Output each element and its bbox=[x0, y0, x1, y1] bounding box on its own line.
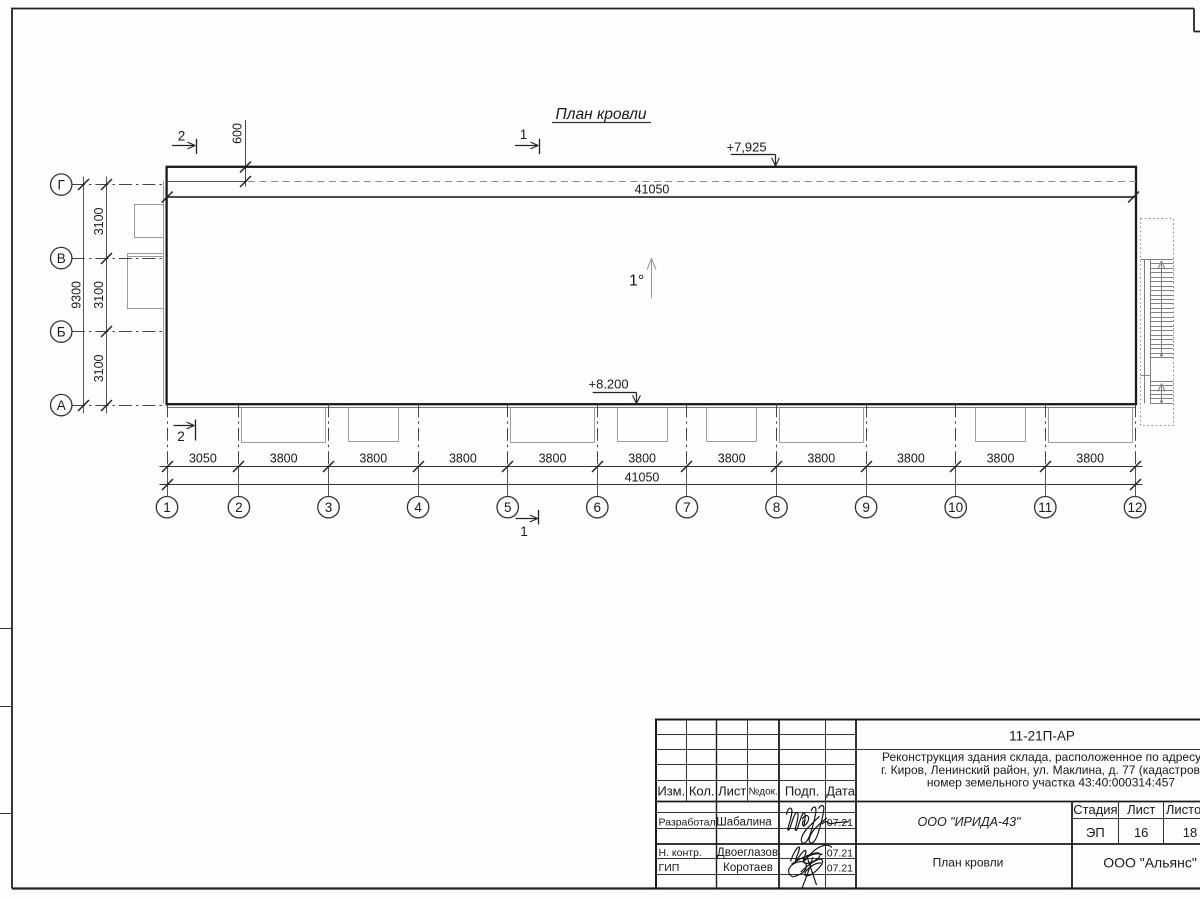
svg-text:Кол.: Кол. bbox=[689, 784, 715, 799]
svg-text:Изм.: Изм. bbox=[657, 784, 685, 799]
svg-text:Подп.: Подп. bbox=[785, 784, 820, 799]
svg-text:В: В bbox=[57, 251, 66, 266]
svg-text:3800: 3800 bbox=[449, 452, 477, 466]
svg-text:А: А bbox=[57, 398, 66, 413]
svg-text:1: 1 bbox=[520, 127, 528, 142]
svg-text:ЭП: ЭП bbox=[1086, 825, 1105, 840]
svg-text:3800: 3800 bbox=[807, 452, 835, 466]
svg-text:2: 2 bbox=[178, 129, 186, 144]
svg-text:18: 18 bbox=[1183, 825, 1197, 840]
svg-text:3800: 3800 bbox=[897, 452, 925, 466]
svg-text:11-21П-АР: 11-21П-АР bbox=[1009, 729, 1075, 744]
svg-text:2: 2 bbox=[235, 500, 243, 515]
svg-text:3800: 3800 bbox=[718, 452, 746, 466]
svg-text:11: 11 bbox=[1038, 500, 1052, 515]
svg-text:41050: 41050 bbox=[625, 471, 660, 485]
svg-text:Дата: Дата bbox=[826, 784, 856, 799]
svg-text:3050: 3050 bbox=[189, 452, 217, 466]
svg-text:3800: 3800 bbox=[987, 452, 1015, 466]
svg-text:1: 1 bbox=[163, 500, 171, 515]
svg-text:07.21: 07.21 bbox=[827, 863, 853, 875]
svg-text:1: 1 bbox=[520, 524, 528, 539]
svg-text:ООО "Альянс": ООО "Альянс" bbox=[1103, 855, 1197, 871]
svg-text:8: 8 bbox=[773, 500, 781, 515]
svg-text:Разработал: Разработал bbox=[659, 817, 716, 829]
svg-text:9300: 9300 bbox=[70, 281, 84, 309]
svg-text:12: 12 bbox=[1127, 500, 1142, 515]
svg-text:3800: 3800 bbox=[1076, 452, 1104, 466]
svg-text:3800: 3800 bbox=[359, 452, 387, 466]
svg-text:10: 10 bbox=[948, 500, 963, 515]
svg-text:3100: 3100 bbox=[92, 207, 106, 235]
svg-text:6: 6 bbox=[594, 500, 602, 515]
svg-text:3800: 3800 bbox=[628, 452, 656, 466]
svg-text:3100: 3100 bbox=[92, 281, 106, 309]
svg-text:Коротаев: Коротаев bbox=[723, 862, 773, 874]
svg-text:№док.: №док. bbox=[749, 787, 778, 798]
svg-text:41050: 41050 bbox=[635, 183, 670, 197]
svg-text:План кровли: План кровли bbox=[933, 856, 1004, 870]
svg-text:Н. контр.: Н. контр. bbox=[659, 847, 702, 859]
svg-text:9: 9 bbox=[862, 500, 870, 515]
svg-text:3800: 3800 bbox=[270, 452, 298, 466]
svg-text:2: 2 bbox=[177, 429, 185, 444]
svg-text:номер земельного участка 43:40: номер земельного участка 43:40:000314:45… bbox=[927, 776, 1176, 790]
svg-text:Г: Г bbox=[58, 177, 66, 192]
svg-text:ООО "ИРИДА-43": ООО "ИРИДА-43" bbox=[918, 815, 1022, 829]
svg-text:Шабалина: Шабалина bbox=[716, 817, 772, 829]
svg-text:3: 3 bbox=[325, 500, 333, 515]
svg-text:+7,925: +7,925 bbox=[727, 140, 767, 155]
svg-text:1°: 1° bbox=[629, 272, 644, 289]
svg-text:+8.200: +8.200 bbox=[589, 377, 629, 392]
svg-text:4: 4 bbox=[414, 500, 422, 515]
svg-text:16: 16 bbox=[1134, 825, 1148, 840]
svg-text:Б: Б bbox=[57, 324, 66, 339]
svg-text:ГИП: ГИП bbox=[659, 862, 680, 874]
svg-text:Лист: Лист bbox=[1127, 802, 1155, 817]
svg-text:5: 5 bbox=[504, 500, 512, 515]
svg-text:Стадия: Стадия bbox=[1073, 802, 1117, 817]
svg-text:7: 7 bbox=[683, 500, 691, 515]
svg-text:07.21: 07.21 bbox=[827, 817, 853, 829]
svg-text:План кровли: План кровли bbox=[556, 106, 647, 123]
svg-text:3800: 3800 bbox=[539, 452, 567, 466]
svg-text:07.21: 07.21 bbox=[827, 848, 853, 860]
svg-text:600: 600 bbox=[231, 123, 245, 144]
svg-text:3100: 3100 bbox=[92, 354, 106, 382]
svg-text:Лист: Лист bbox=[718, 784, 746, 799]
svg-text:Двоеглазов: Двоеглазов bbox=[717, 847, 778, 859]
svg-text:Листов: Листов bbox=[1166, 802, 1200, 817]
